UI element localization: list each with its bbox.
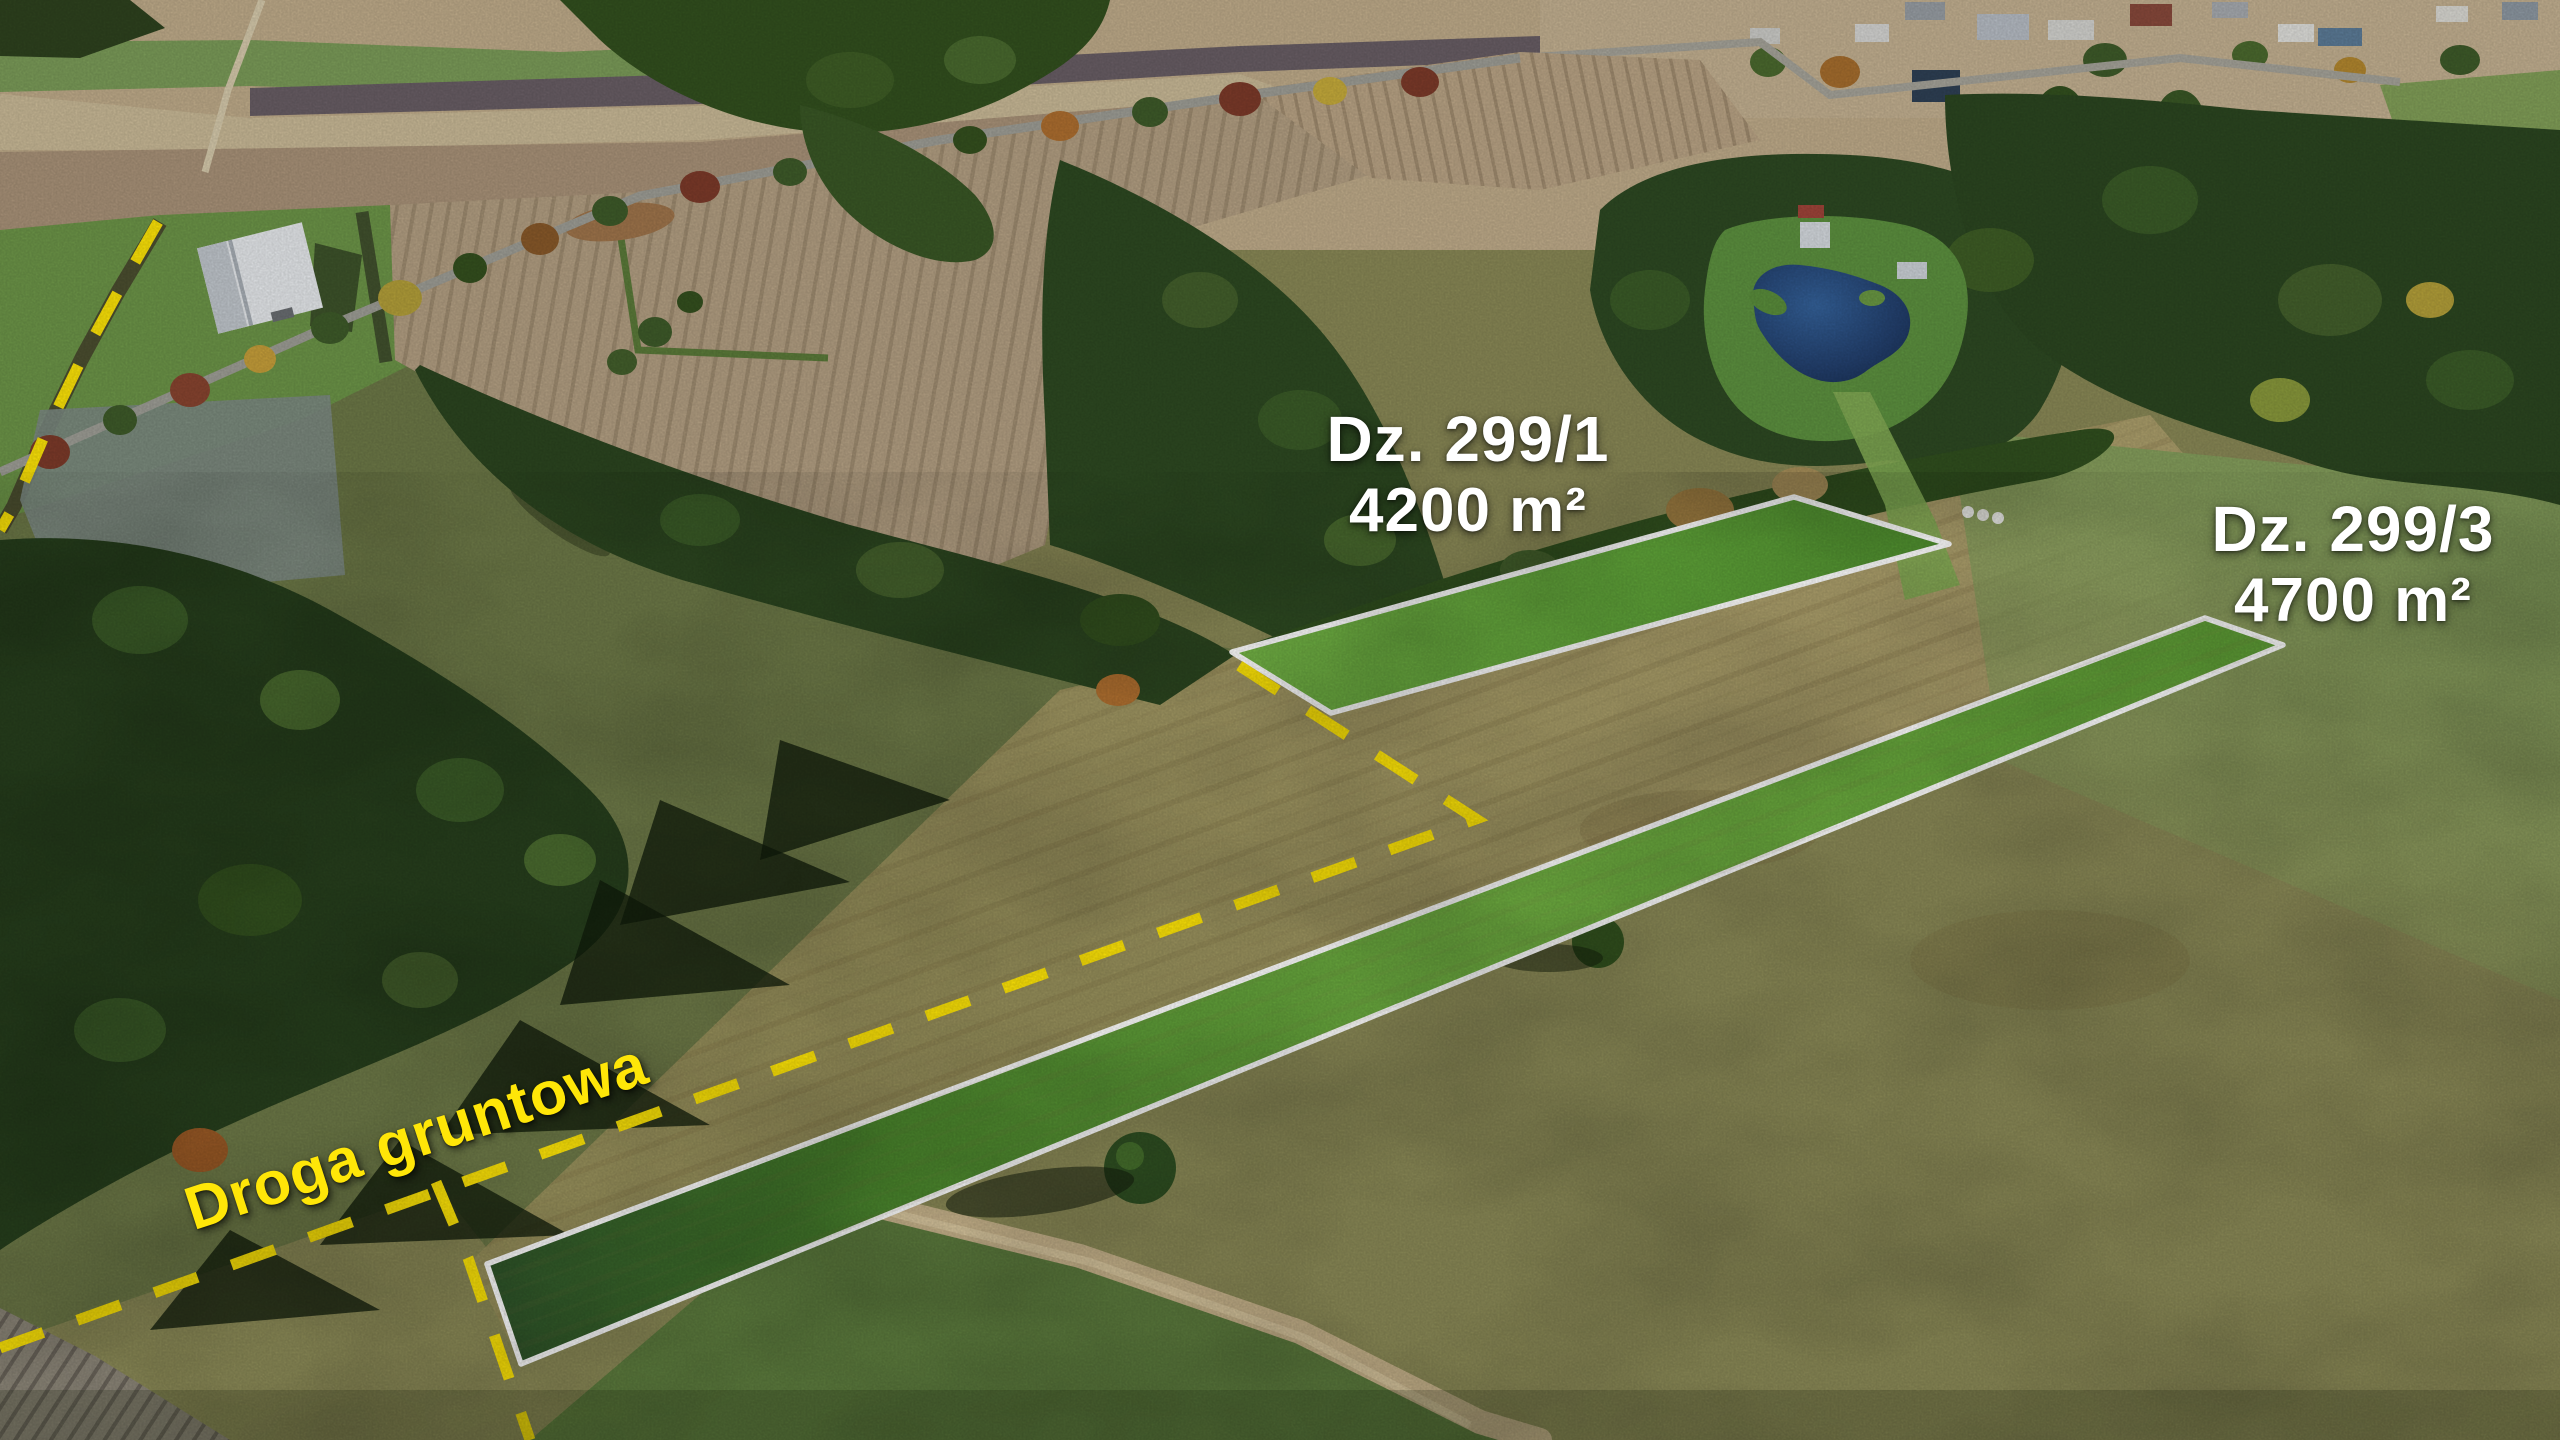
parcel-299-3-label: Dz. 299/3 4700 m²: [2212, 494, 2495, 635]
parcel-299-1-id: Dz. 299/1: [1327, 404, 1610, 476]
aerial-photo: Dz. 299/1 4200 m² Dz. 299/3 4700 m² Drog…: [0, 0, 2560, 1440]
parcel-299-3-id: Dz. 299/3: [2212, 494, 2495, 566]
photo-grain: [0, 0, 2560, 1440]
terrain-scene: [0, 0, 2560, 1440]
parcel-299-1-label: Dz. 299/1 4200 m²: [1327, 404, 1610, 545]
parcel-299-1-area: 4200 m²: [1327, 476, 1610, 545]
parcel-299-3-area: 4700 m²: [2212, 566, 2495, 635]
